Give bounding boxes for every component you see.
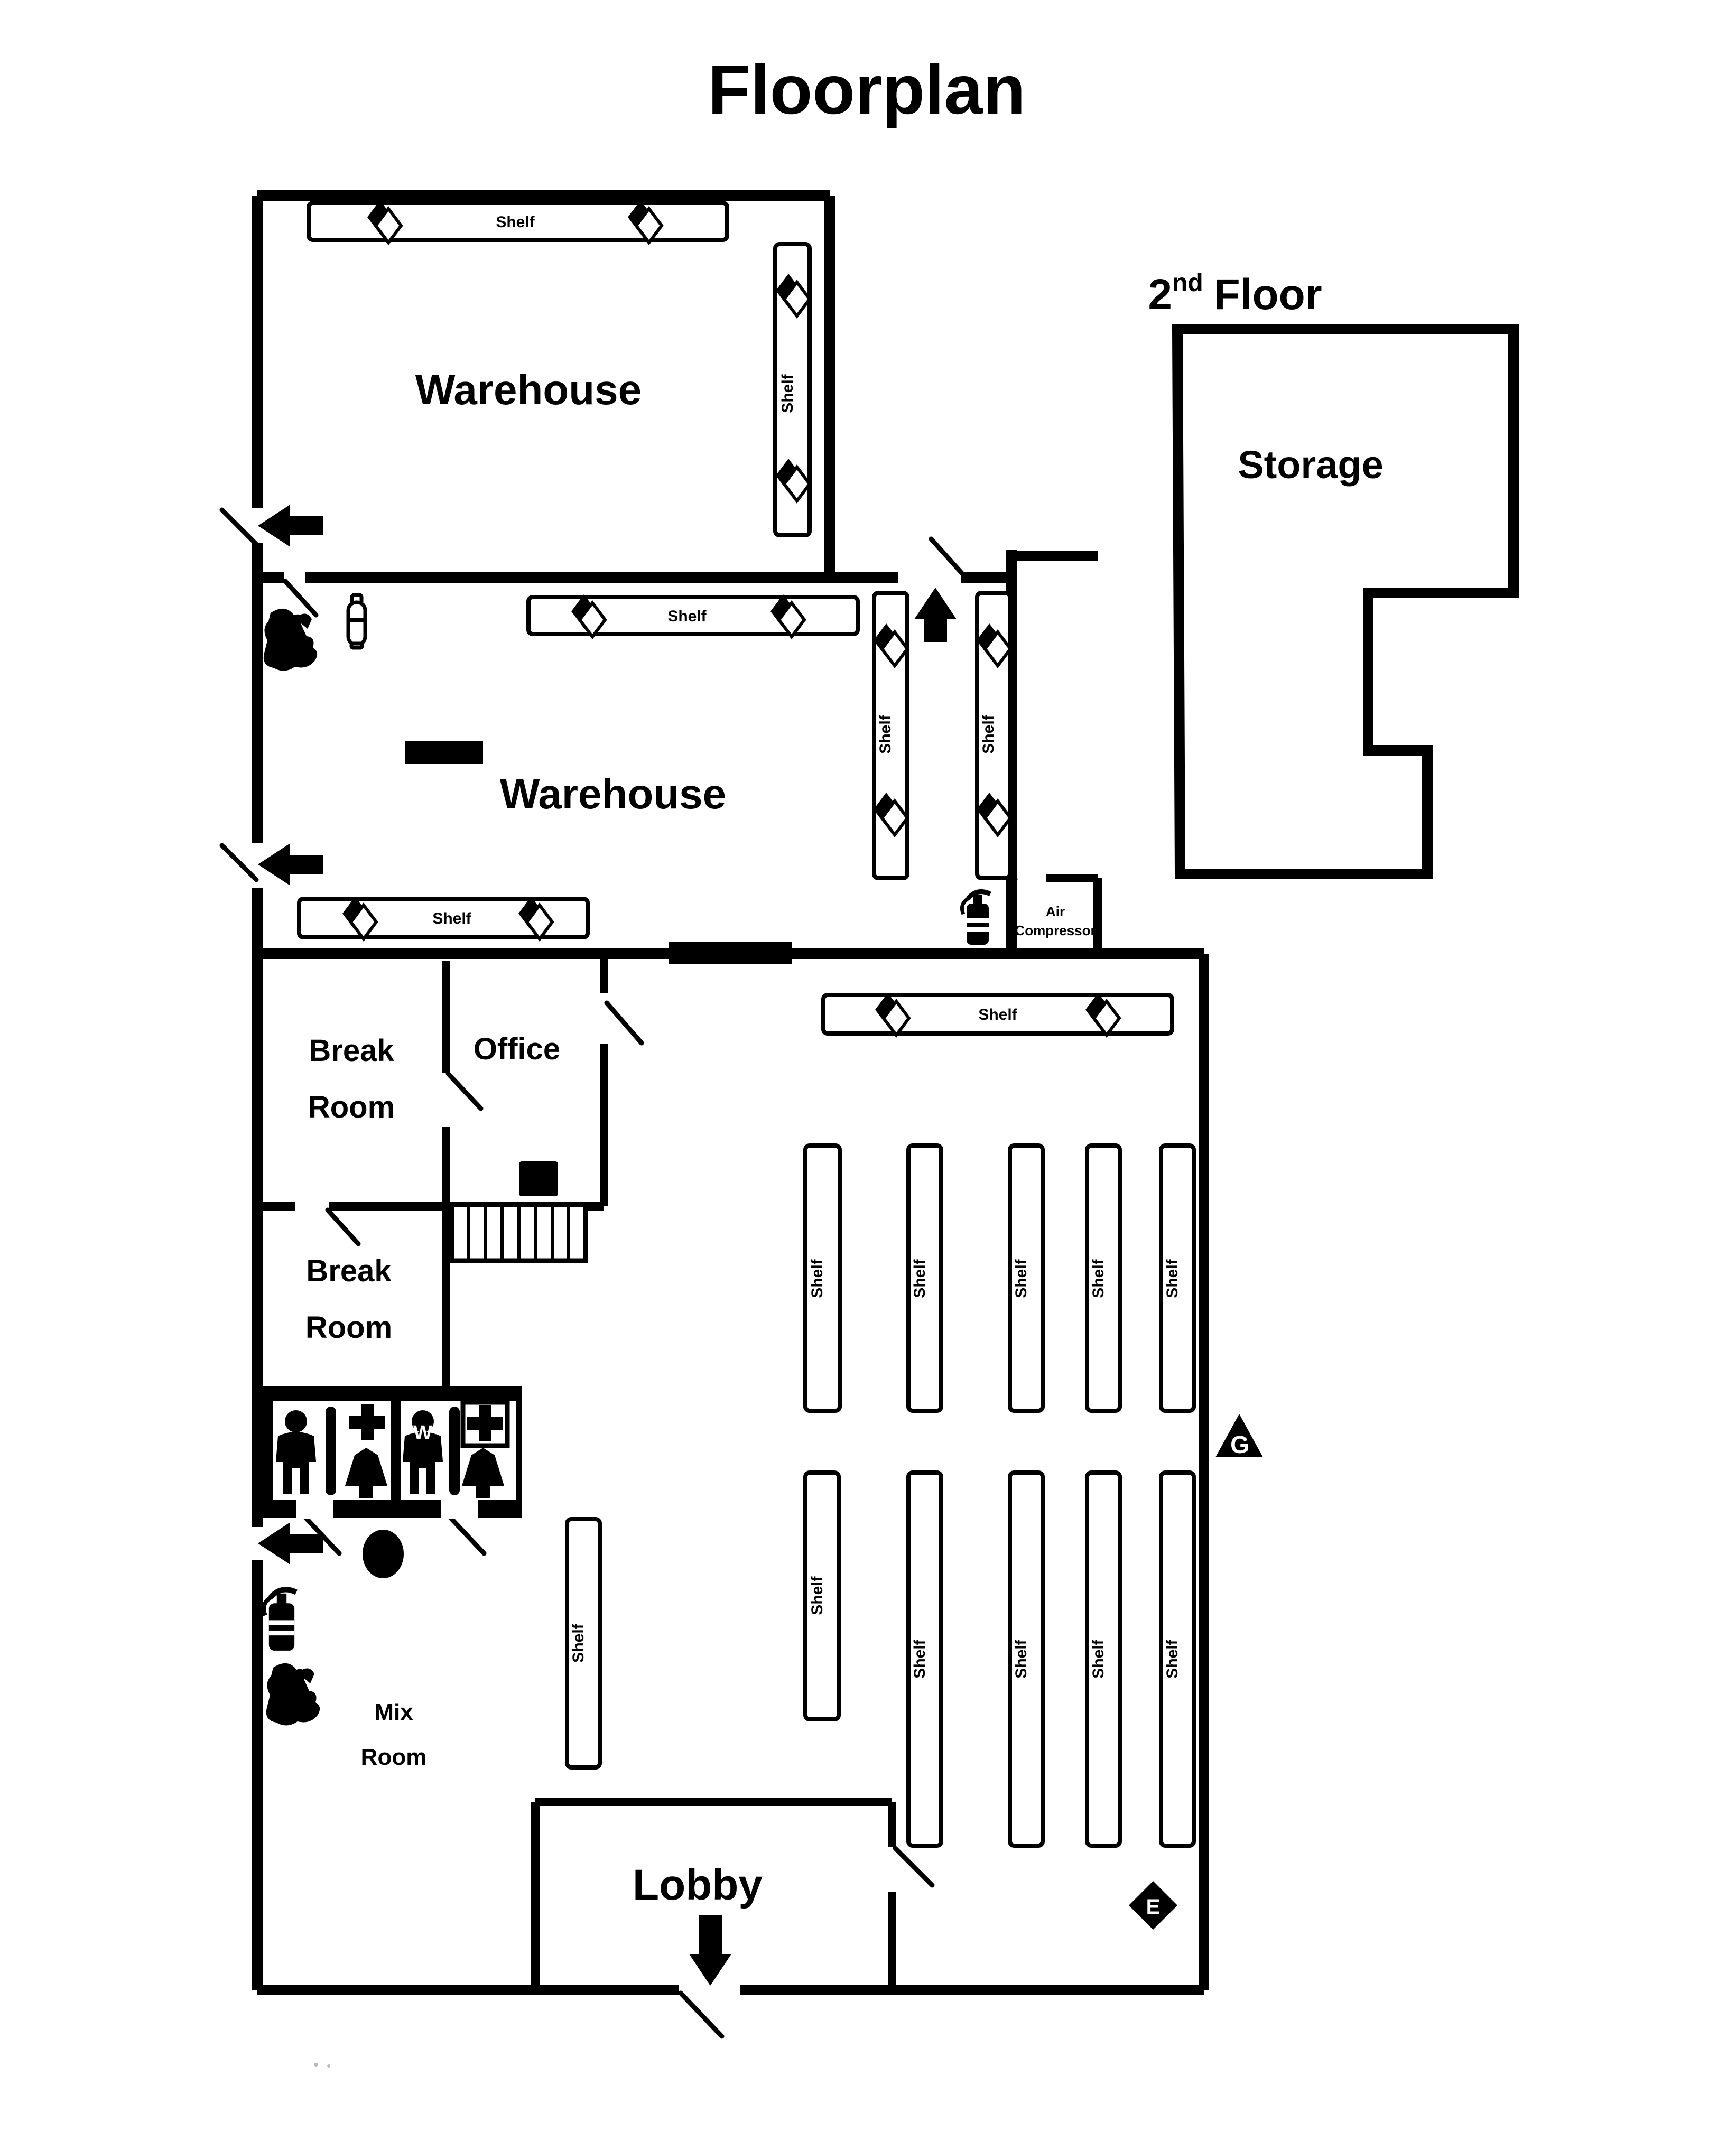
shelf-label: Shelf bbox=[1090, 1639, 1107, 1678]
drum-icon bbox=[363, 1530, 404, 1578]
shelf-label: Shelf bbox=[1013, 1259, 1030, 1298]
break-room-upper-label-line1: Break bbox=[309, 1034, 394, 1068]
exit-arrow-left-icon bbox=[258, 843, 323, 886]
shelf-label: Shelf bbox=[1164, 1639, 1181, 1678]
fire-extinguisher-icon bbox=[962, 892, 990, 945]
emergency-marker: E bbox=[1129, 1881, 1177, 1930]
scan-speck bbox=[327, 2064, 330, 2068]
shelf-label: Shelf bbox=[980, 714, 997, 753]
shelf-label: Shelf bbox=[1090, 1259, 1107, 1298]
air-compressor-label-line2: Compressor bbox=[1015, 923, 1096, 938]
fire-extinguisher-icon bbox=[264, 1589, 296, 1651]
shelf-label: Shelf bbox=[809, 1259, 826, 1298]
break-room-lower-label-line2: Room bbox=[305, 1310, 392, 1345]
warehouse-lower-label: Warehouse bbox=[500, 770, 726, 817]
copier-icon bbox=[519, 1161, 558, 1196]
break-room-upper-label-line2: Room bbox=[308, 1090, 395, 1124]
exit-arrow-left-icon bbox=[258, 505, 323, 547]
storage-room-outline bbox=[1177, 329, 1514, 874]
office-label: Office bbox=[474, 1032, 560, 1066]
shelf-label: Shelf bbox=[877, 714, 894, 753]
restroom-door-gap bbox=[296, 1500, 333, 1519]
shelf-label: Shelf bbox=[779, 374, 796, 413]
svg-text:E: E bbox=[1146, 1895, 1161, 1919]
storage-label: Storage bbox=[1238, 443, 1384, 487]
shelf-label: Shelf bbox=[911, 1259, 929, 1298]
propane-tank-icon bbox=[348, 595, 365, 648]
forklift-icon bbox=[266, 1663, 320, 1726]
shelf-label: Shelf bbox=[667, 608, 707, 625]
mix-room-label-line1: Mix bbox=[374, 1699, 413, 1725]
pallet-block-icon bbox=[405, 741, 483, 764]
women-room-letter: W bbox=[413, 1422, 432, 1444]
shelf-label: Shelf bbox=[809, 1576, 826, 1615]
exit-arrow-down-icon bbox=[689, 1915, 731, 1986]
second-floor-label: 2ndFloor bbox=[1148, 269, 1322, 319]
break-room-lower-label-line1: Break bbox=[306, 1254, 392, 1288]
restroom-door-gap bbox=[441, 1500, 478, 1519]
shelf-label: Shelf bbox=[432, 910, 471, 927]
dock-door-bar bbox=[669, 942, 792, 964]
stairs bbox=[452, 1205, 586, 1261]
exit-arrow-up-icon bbox=[914, 588, 957, 642]
shelf-label: Shelf bbox=[978, 1006, 1017, 1023]
lobby-label: Lobby bbox=[633, 1861, 763, 1909]
restroom-block: W bbox=[254, 1386, 522, 1519]
shelf-label: Shelf bbox=[911, 1639, 929, 1678]
shelf-label: Shelf bbox=[570, 1623, 587, 1662]
shelf-label: Shelf bbox=[1013, 1639, 1030, 1678]
floorplan-page: { "title": "Floorplan", "rooms": { "ware… bbox=[0, 0, 1736, 2141]
restroom-divider bbox=[326, 1407, 336, 1495]
restroom-divider bbox=[449, 1407, 460, 1495]
air-compressor-label-line1: Air bbox=[1046, 904, 1065, 919]
mix-room-label-line2: Room bbox=[361, 1744, 427, 1770]
shelf-label: Shelf bbox=[496, 213, 535, 231]
gas-shutoff-marker: G bbox=[1215, 1414, 1263, 1458]
scan-speck bbox=[314, 2063, 318, 2067]
forklift-icon bbox=[264, 609, 317, 671]
floorplan-drawing: Shelf Shelf Shelf Shelf Shelf Shelf Shel… bbox=[0, 0, 1736, 2141]
warehouse-upper-label: Warehouse bbox=[415, 366, 642, 413]
page-title: Floorplan bbox=[708, 51, 1025, 128]
svg-text:G: G bbox=[1230, 1431, 1249, 1458]
shelf-label: Shelf bbox=[1164, 1259, 1181, 1298]
